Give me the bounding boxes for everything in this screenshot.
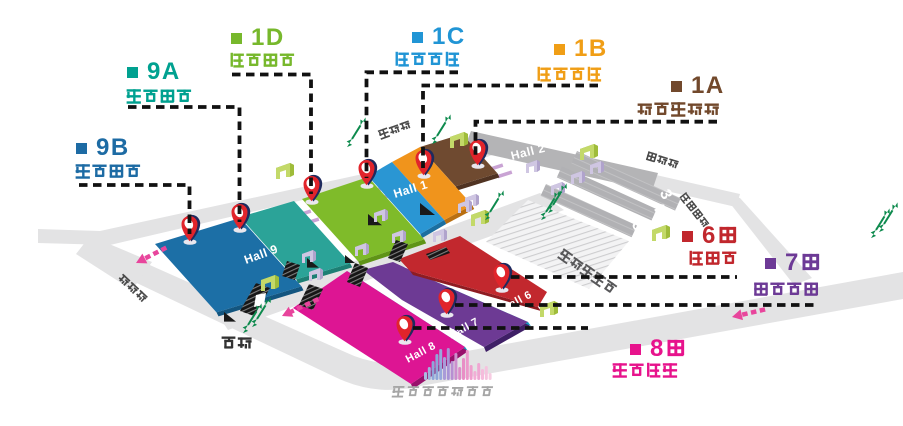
svg-text:9A: 9A <box>147 58 181 85</box>
svg-text:8: 8 <box>650 335 665 362</box>
svg-text:1C: 1C <box>432 23 466 50</box>
svg-text:1B: 1B <box>574 35 608 62</box>
svg-text:7: 7 <box>785 249 800 276</box>
svg-text:1A: 1A <box>691 72 725 99</box>
svg-text:9B: 9B <box>96 134 130 161</box>
svg-text:1D: 1D <box>251 24 285 51</box>
svg-text:6: 6 <box>702 222 717 249</box>
